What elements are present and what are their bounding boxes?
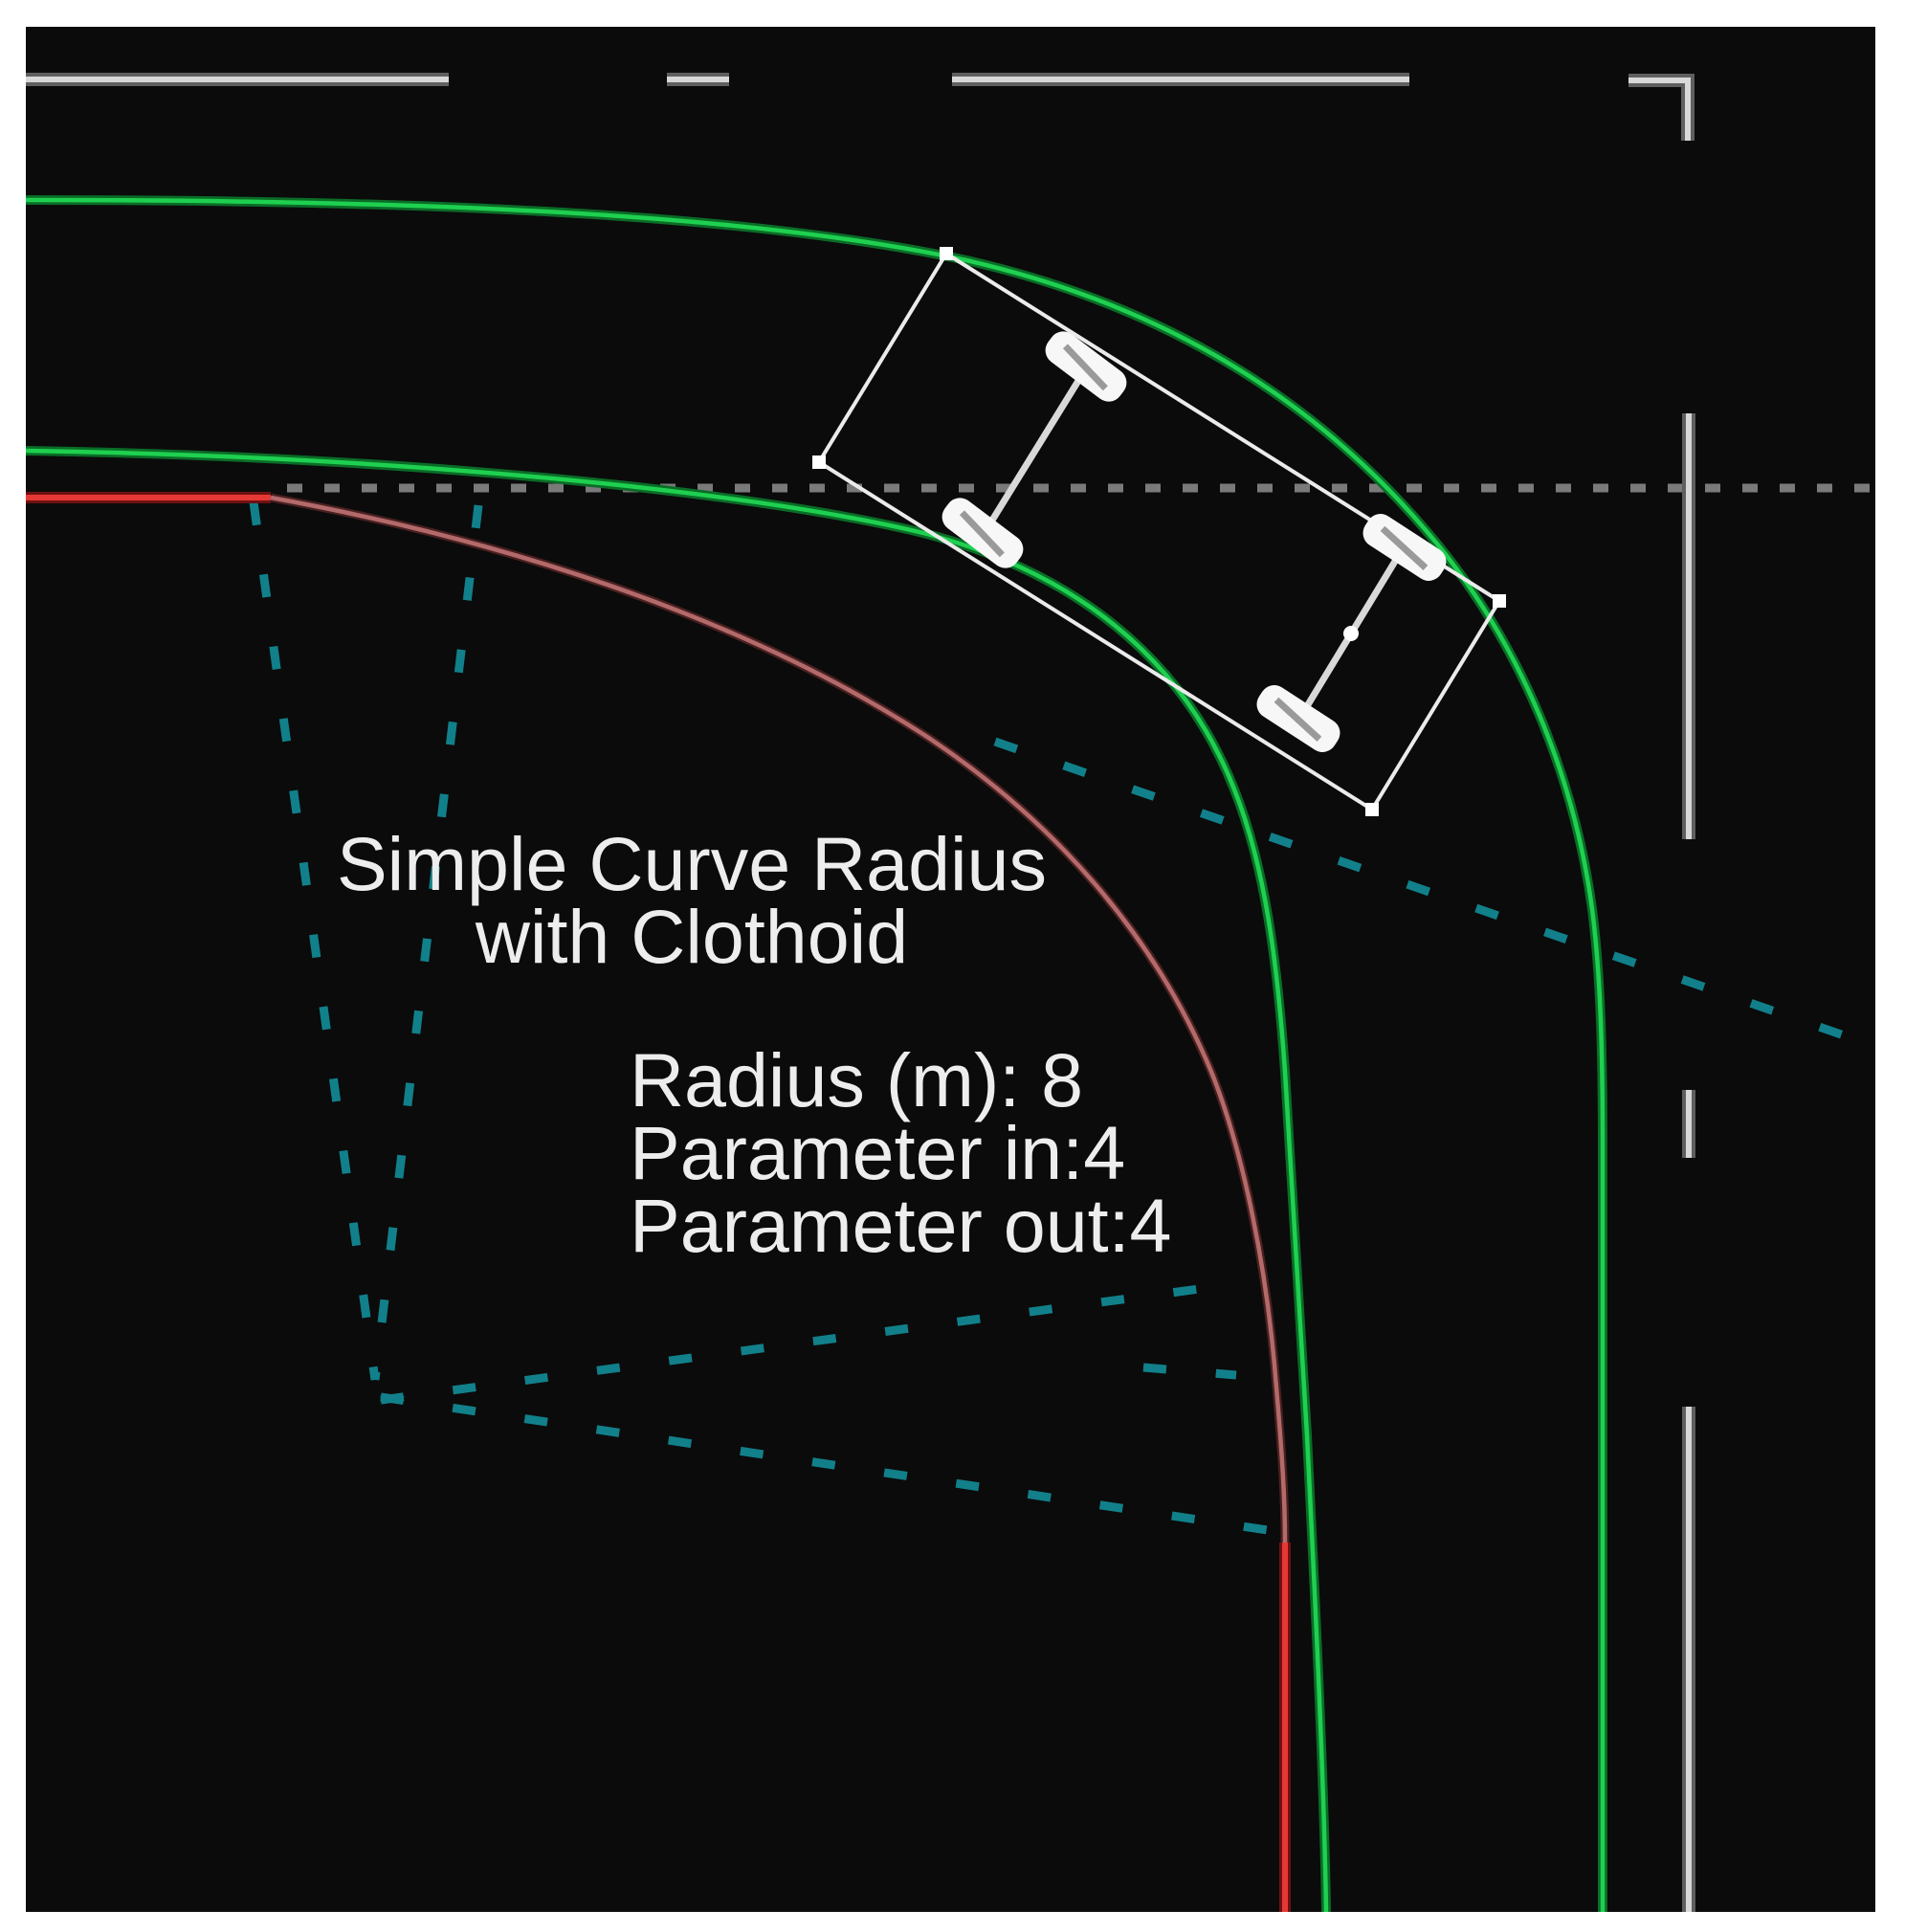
vehicle-corner-dot-front-right	[1493, 594, 1506, 608]
vehicle-corner-dot-front-left	[940, 247, 953, 260]
title-line2: with Clothoid	[475, 894, 908, 979]
parameter-out-label: Parameter out:4	[630, 1183, 1171, 1268]
simulation-page: Simple Curve Radius with Clothoid Radius…	[0, 0, 1905, 1932]
vehicle-hitch-dot	[1343, 626, 1359, 641]
vehicle-corner-dot-rear-right	[1365, 803, 1379, 816]
vehicle-corner-dot-rear-left	[812, 455, 826, 469]
simulation-canvas: Simple Curve Radius with Clothoid Radius…	[0, 0, 1905, 1932]
